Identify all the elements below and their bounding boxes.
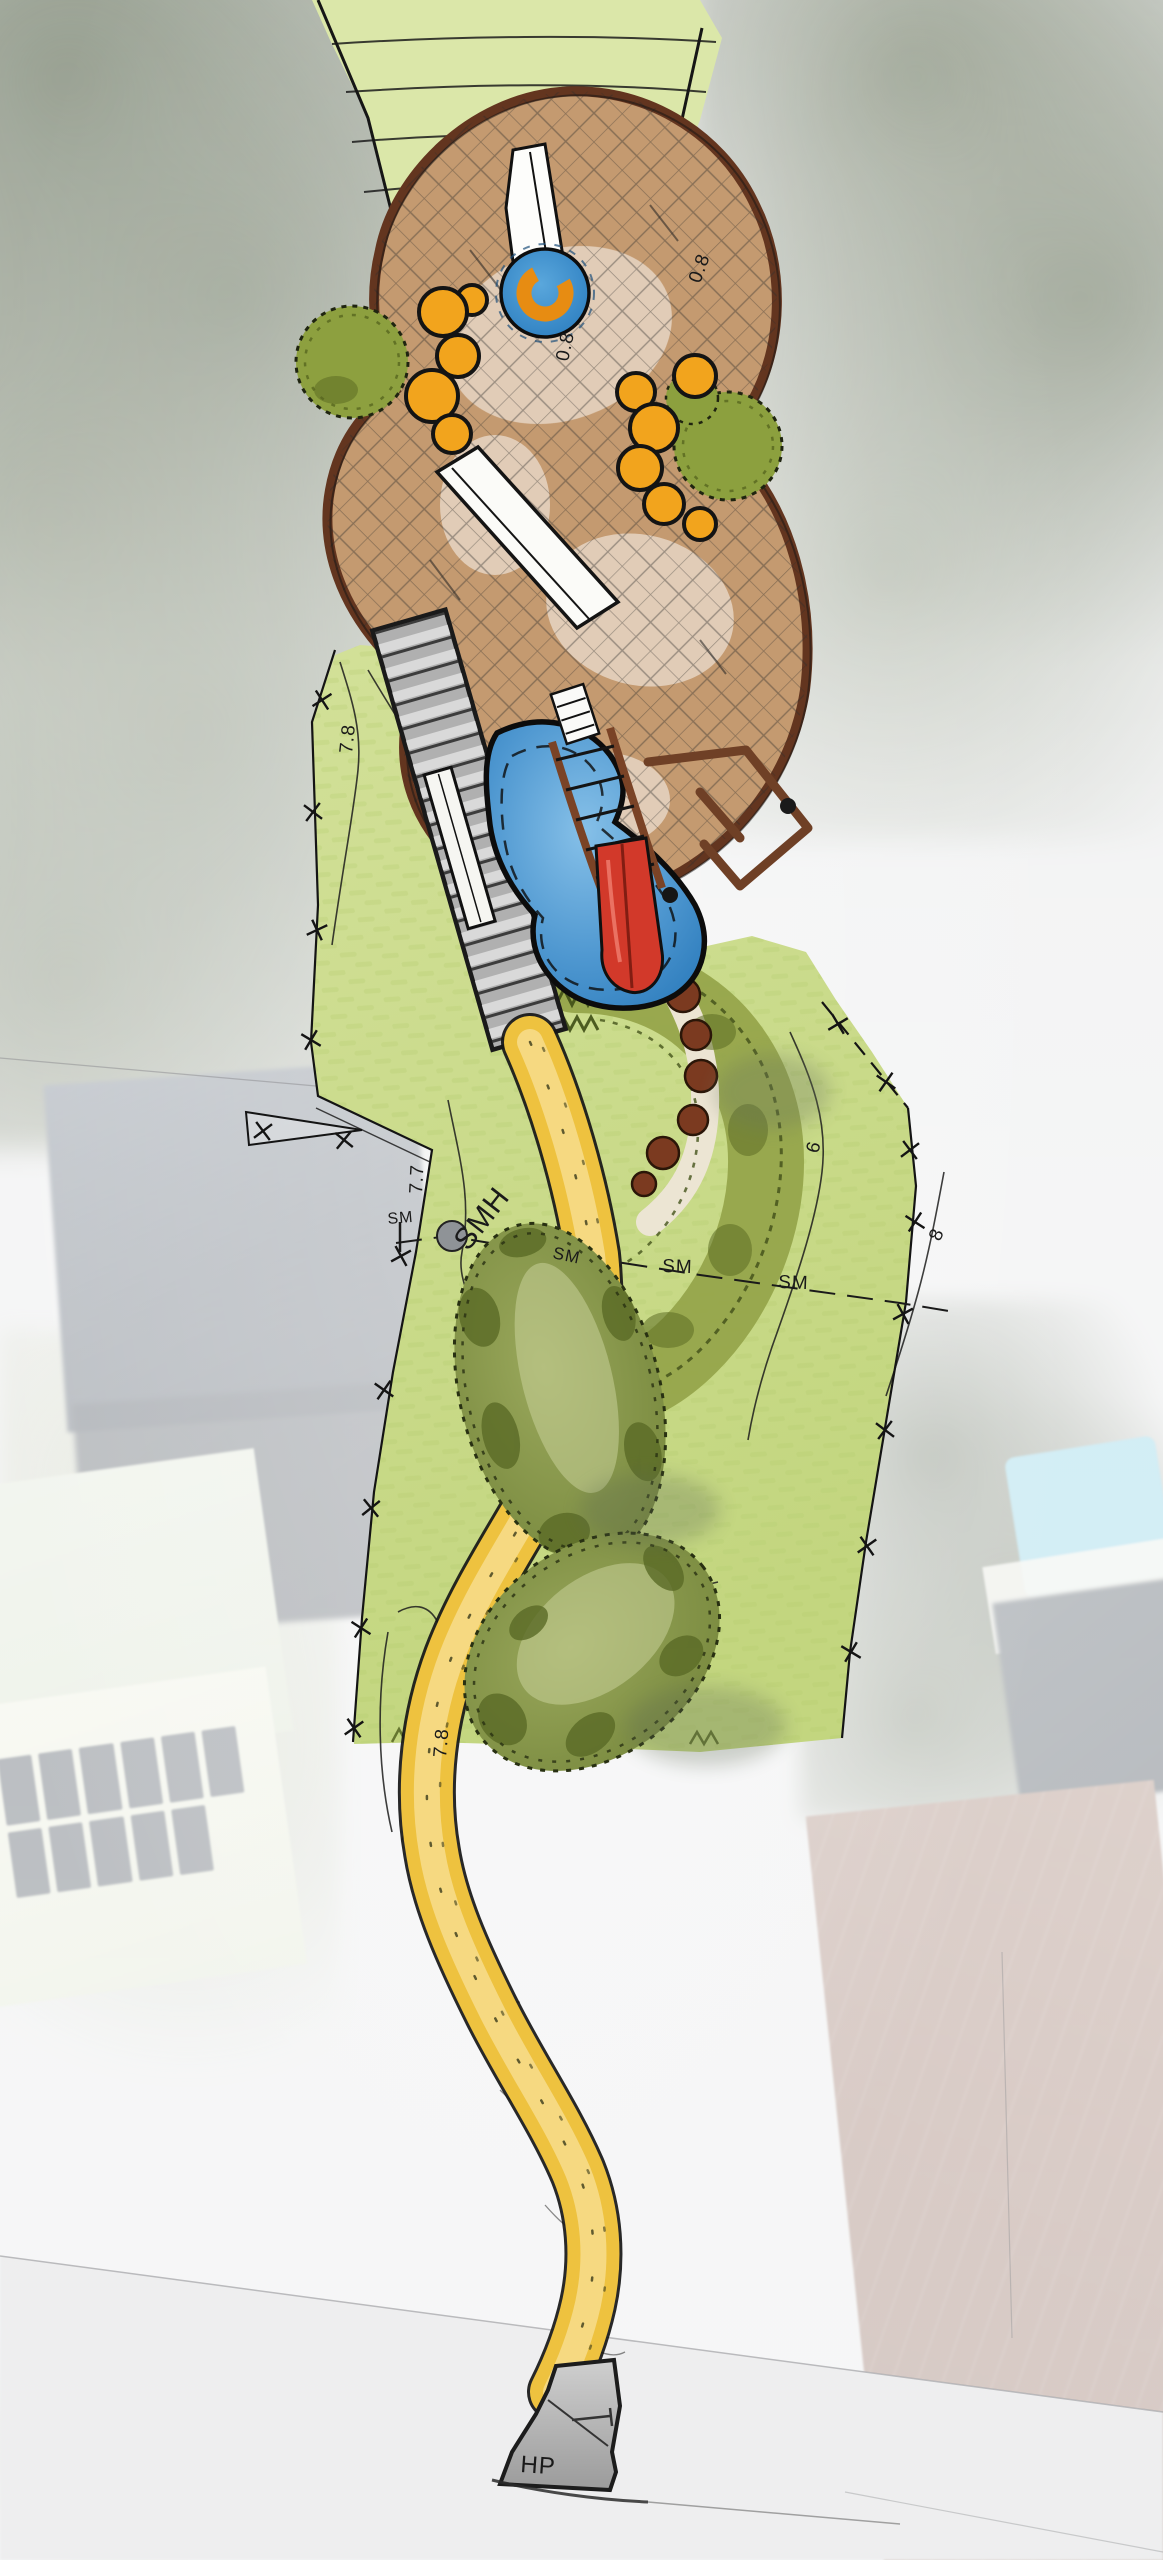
landscape-concept-plan: SMH SM SM SM SM HP 0.8 0.8 7.8 7.7 6 8 7… (0, 0, 1163, 2560)
tree-shadow (626, 1686, 786, 1766)
tree-shadow (580, 1474, 720, 1546)
label-sm-1: SM (387, 1209, 414, 1228)
plan-drawing: SMH SM SM SM SM HP 0.8 0.8 7.8 7.7 6 8 7… (0, 0, 1163, 2560)
contour-label-78-b: 7.8 (430, 1727, 453, 1758)
label-sm-3: SM (662, 1256, 693, 1278)
shrub-left (296, 306, 408, 418)
label-hp: HP (520, 2451, 557, 2480)
contour-label-8: 8 (925, 1225, 949, 1244)
contour-label-77: 7.7 (406, 1164, 429, 1194)
label-sm-4: SM (778, 1272, 809, 1294)
path-entry-apron (492, 2360, 900, 2524)
contour-label-78-a: 7.8 (336, 723, 360, 754)
